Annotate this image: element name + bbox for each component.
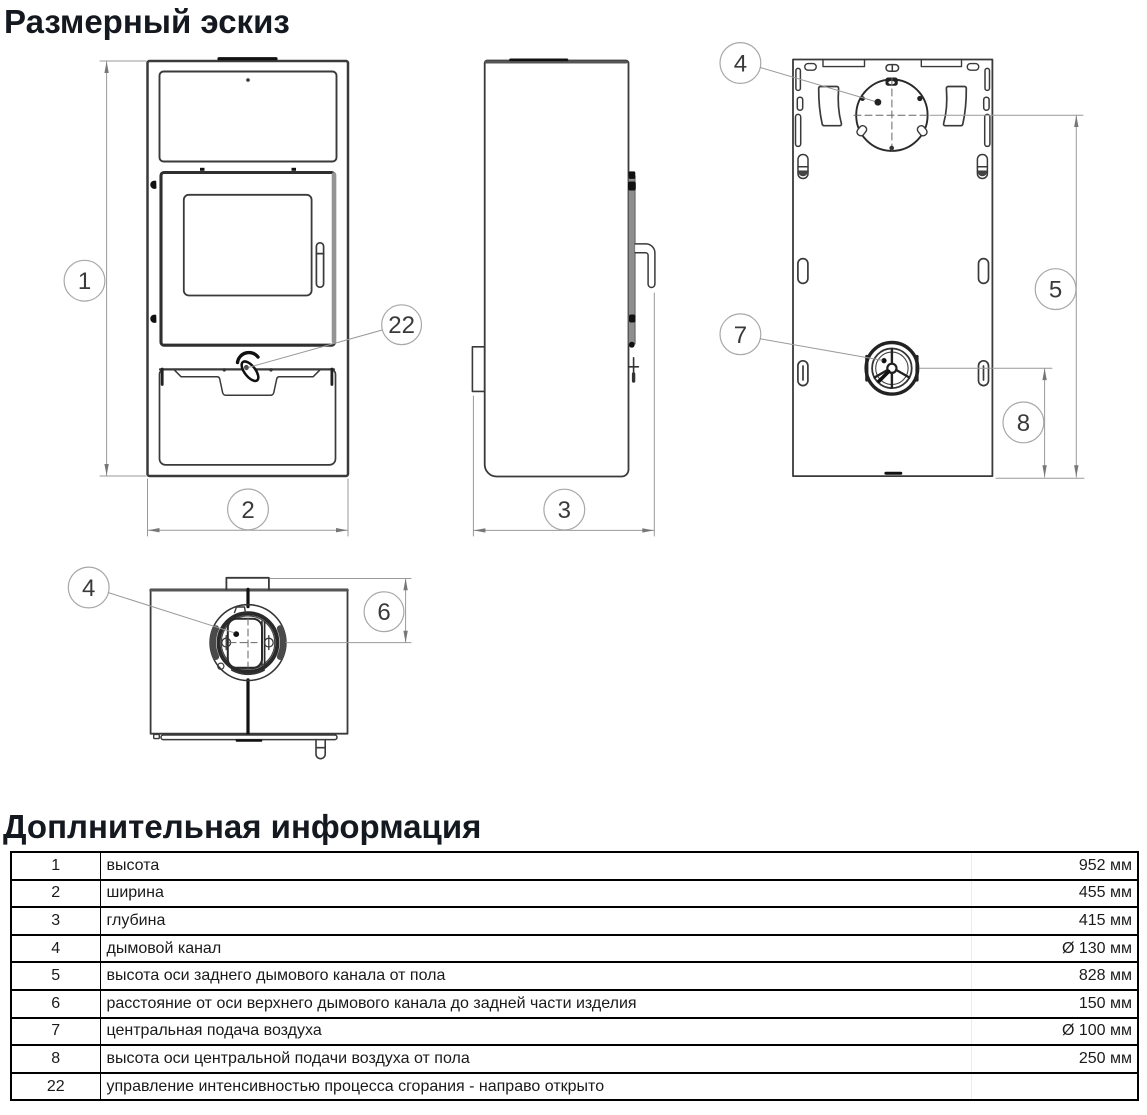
svg-text:1: 1 [78, 268, 91, 295]
svg-text:22: 22 [388, 312, 415, 339]
svg-text:4: 4 [734, 51, 747, 78]
svg-text:8: 8 [1017, 410, 1030, 437]
svg-text:5: 5 [1049, 277, 1062, 304]
svg-text:3: 3 [558, 497, 571, 524]
svg-text:2: 2 [241, 497, 254, 524]
svg-text:6: 6 [377, 599, 390, 626]
svg-text:4: 4 [82, 575, 95, 602]
svg-text:7: 7 [734, 322, 747, 349]
